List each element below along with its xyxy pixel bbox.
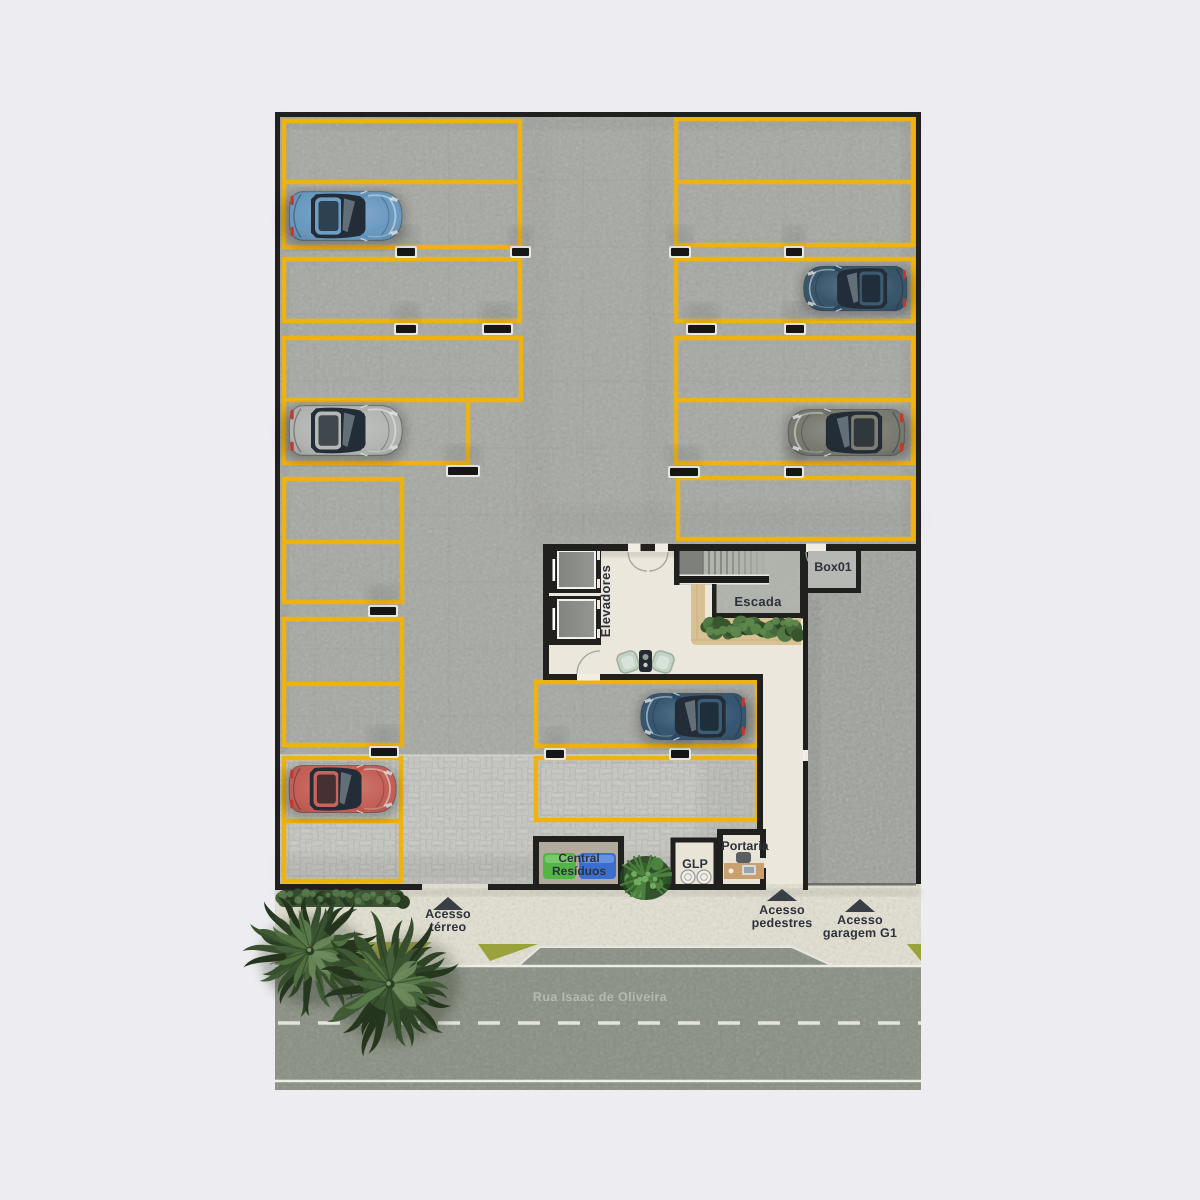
svg-text:Acesso: Acesso: [759, 903, 805, 917]
svg-text:Acesso: Acesso: [837, 913, 883, 927]
svg-text:Resíduos: Resíduos: [552, 864, 606, 878]
svg-text:Elevadores: Elevadores: [598, 565, 613, 637]
svg-text:Box01: Box01: [814, 560, 852, 574]
svg-text:Central: Central: [558, 851, 599, 865]
svg-text:Escada: Escada: [734, 594, 782, 609]
svg-text:pedestres: pedestres: [752, 916, 813, 930]
svg-text:Rua Isaac de Oliveira: Rua Isaac de Oliveira: [533, 990, 668, 1004]
svg-text:garagem G1: garagem G1: [823, 926, 897, 940]
svg-text:Acesso: Acesso: [425, 907, 471, 921]
svg-text:térreo: térreo: [430, 920, 467, 934]
svg-text:Portaria: Portaria: [721, 839, 769, 853]
svg-text:GLP: GLP: [682, 857, 708, 871]
